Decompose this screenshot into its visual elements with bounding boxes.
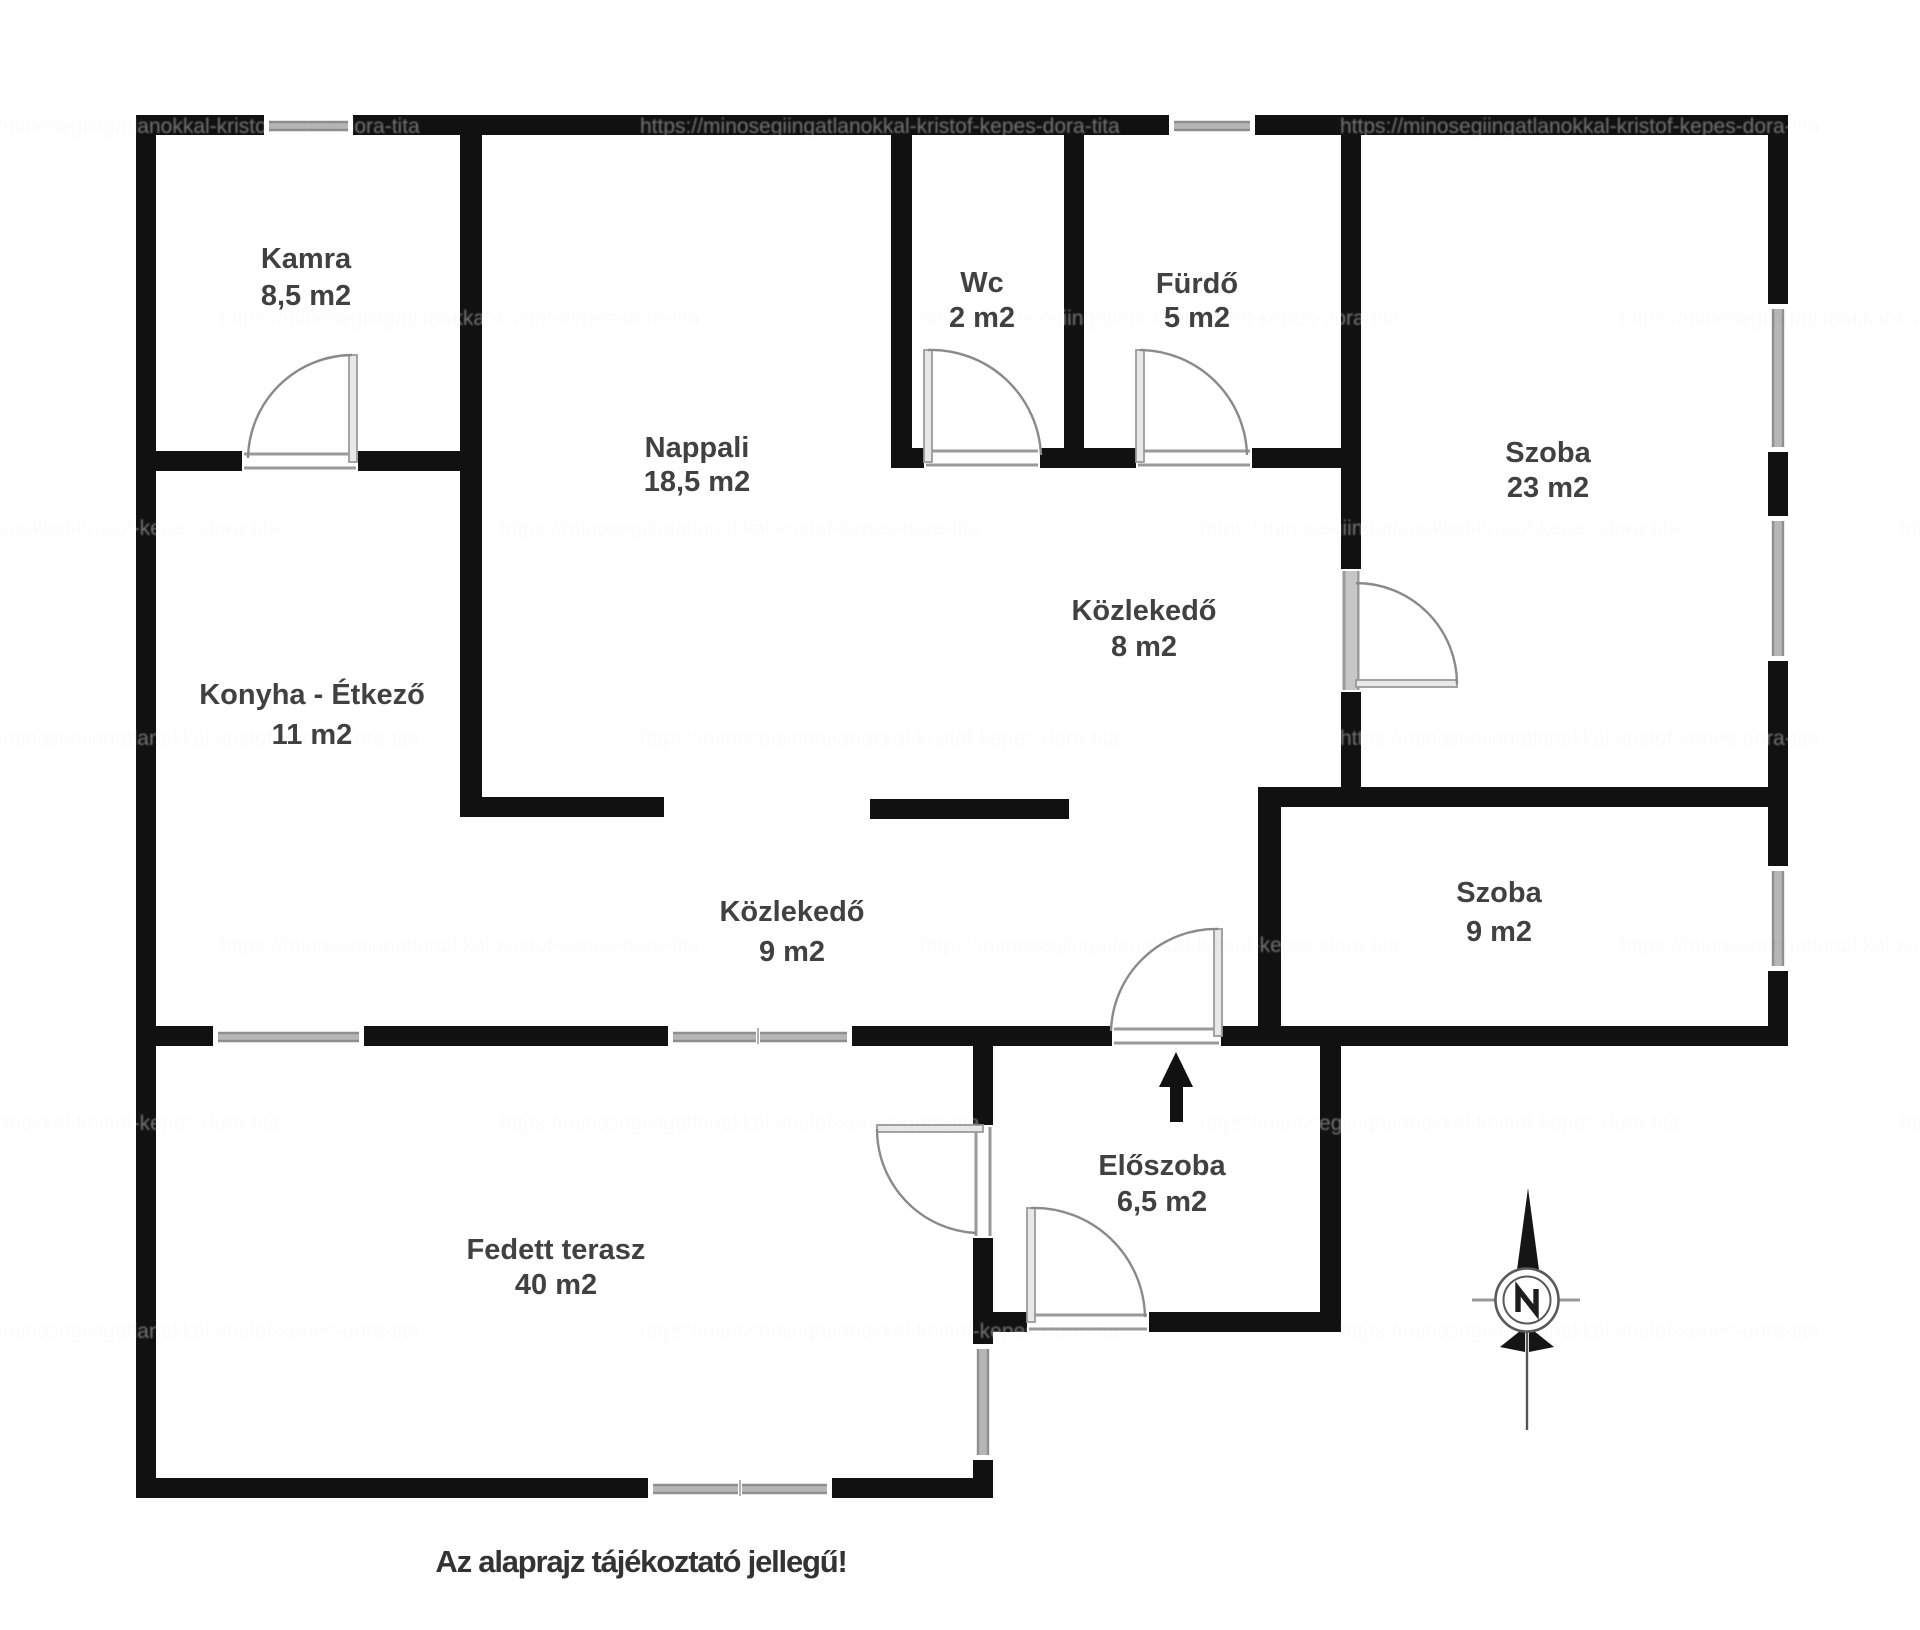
svg-text:Közlekedő: Közlekedő <box>1071 595 1216 627</box>
svg-text:https://minosegiingatlanokkal-: https://minosegiingatlanokkal-kristof-ke… <box>640 1320 1120 1343</box>
svg-text:https://minosegiingatlanokkal-: https://minosegiingatlanokkal-kristof-ke… <box>920 934 1400 957</box>
svg-text:https://minosegiingatlanokkal-: https://minosegiingatlanokkal-kristof-ke… <box>220 307 700 330</box>
svg-text:Szoba: Szoba <box>1505 437 1591 469</box>
svg-text:https://minosegiingatlanokkal-: https://minosegiingatlanokkal-kristof-ke… <box>1200 517 1680 540</box>
svg-text:Nappali: Nappali <box>645 432 750 464</box>
svg-text:Az alaprajz tájékoztató jelleg: Az alaprajz tájékoztató jellegű! <box>435 1544 846 1579</box>
svg-text:Közlekedő: Közlekedő <box>719 896 864 928</box>
svg-text:https://minosegiingatlanokkal-: https://minosegiingatlanokkal-kristof-ke… <box>640 727 1120 750</box>
svg-text:23 m2: 23 m2 <box>1507 472 1589 504</box>
svg-text:https://minosegiingatlanokkal-: https://minosegiingatlanokkal-kristof-ke… <box>0 1112 280 1135</box>
svg-text:6,5 m2: 6,5 m2 <box>1117 1186 1207 1218</box>
svg-text:https://minosegiingatlanokkal-: https://minosegiingatlanokkal-kristof-ke… <box>1200 1112 1680 1135</box>
svg-text:https://minosegiingatlanokkal-: https://minosegiingatlanokkal-kristof-ke… <box>220 934 700 957</box>
svg-text:9 m2: 9 m2 <box>759 936 825 968</box>
svg-text:https://minosegiingatlanokkal-: https://minosegiingatlanokkal-kristof-ke… <box>0 727 420 750</box>
svg-text:8 m2: 8 m2 <box>1111 631 1177 663</box>
svg-text:https://minosegiingatlanokkal-: https://minosegiingatlanokkal-kristof-ke… <box>1340 115 1820 138</box>
svg-text:https://minosegiingatlanokkal-: https://minosegiingatlanokkal-kristof-ke… <box>1900 517 1920 540</box>
svg-text:18,5 m2: 18,5 m2 <box>644 466 750 498</box>
svg-text:Wc: Wc <box>960 267 1004 299</box>
svg-text:https://minosegiingatlanokkal-: https://minosegiingatlanokkal-kristof-ke… <box>1340 1320 1820 1343</box>
svg-text:Szoba: Szoba <box>1456 877 1542 909</box>
svg-text:https://minosegiingatlanokkal-: https://minosegiingatlanokkal-kristof-ke… <box>1620 934 1920 957</box>
svg-text:Előszoba: Előszoba <box>1098 1150 1226 1182</box>
svg-text:https://minosegiingatlanokkal-: https://minosegiingatlanokkal-kristof-ke… <box>640 115 1120 138</box>
svg-text:https://minosegiingatlanokkal-: https://minosegiingatlanokkal-kristof-ke… <box>0 1320 420 1343</box>
svg-text:https://minosegiingatlanokkal-: https://minosegiingatlanokkal-kristof-ke… <box>0 115 420 138</box>
svg-text:Fedett terasz: Fedett terasz <box>467 1234 646 1266</box>
svg-text:9 m2: 9 m2 <box>1466 916 1532 948</box>
svg-text:https://minosegiingatlanokkal-: https://minosegiingatlanokkal-kristof-ke… <box>920 307 1400 330</box>
svg-text:https://minosegiingatlanokkal-: https://minosegiingatlanokkal-kristof-ke… <box>500 517 980 540</box>
svg-text:https://minosegiingatlanokkal-: https://minosegiingatlanokkal-kristof-ke… <box>1620 307 1920 330</box>
svg-text:40 m2: 40 m2 <box>515 1269 597 1301</box>
svg-text:https://minosegiingatlanokkal-: https://minosegiingatlanokkal-kristof-ke… <box>500 1112 980 1135</box>
svg-text:https://minosegiingatlanokkal-: https://minosegiingatlanokkal-kristof-ke… <box>1340 727 1820 750</box>
svg-text:Konyha - Étkező: Konyha - Étkező <box>199 677 425 711</box>
svg-text:https://minosegiingatlanokkal-: https://minosegiingatlanokkal-kristof-ke… <box>0 517 280 540</box>
svg-text:Kamra: Kamra <box>261 243 352 275</box>
svg-text:Fürdő: Fürdő <box>1156 268 1238 300</box>
svg-text:https://minosegiingatlanokkal-: https://minosegiingatlanokkal-kristof-ke… <box>1900 1112 1920 1135</box>
